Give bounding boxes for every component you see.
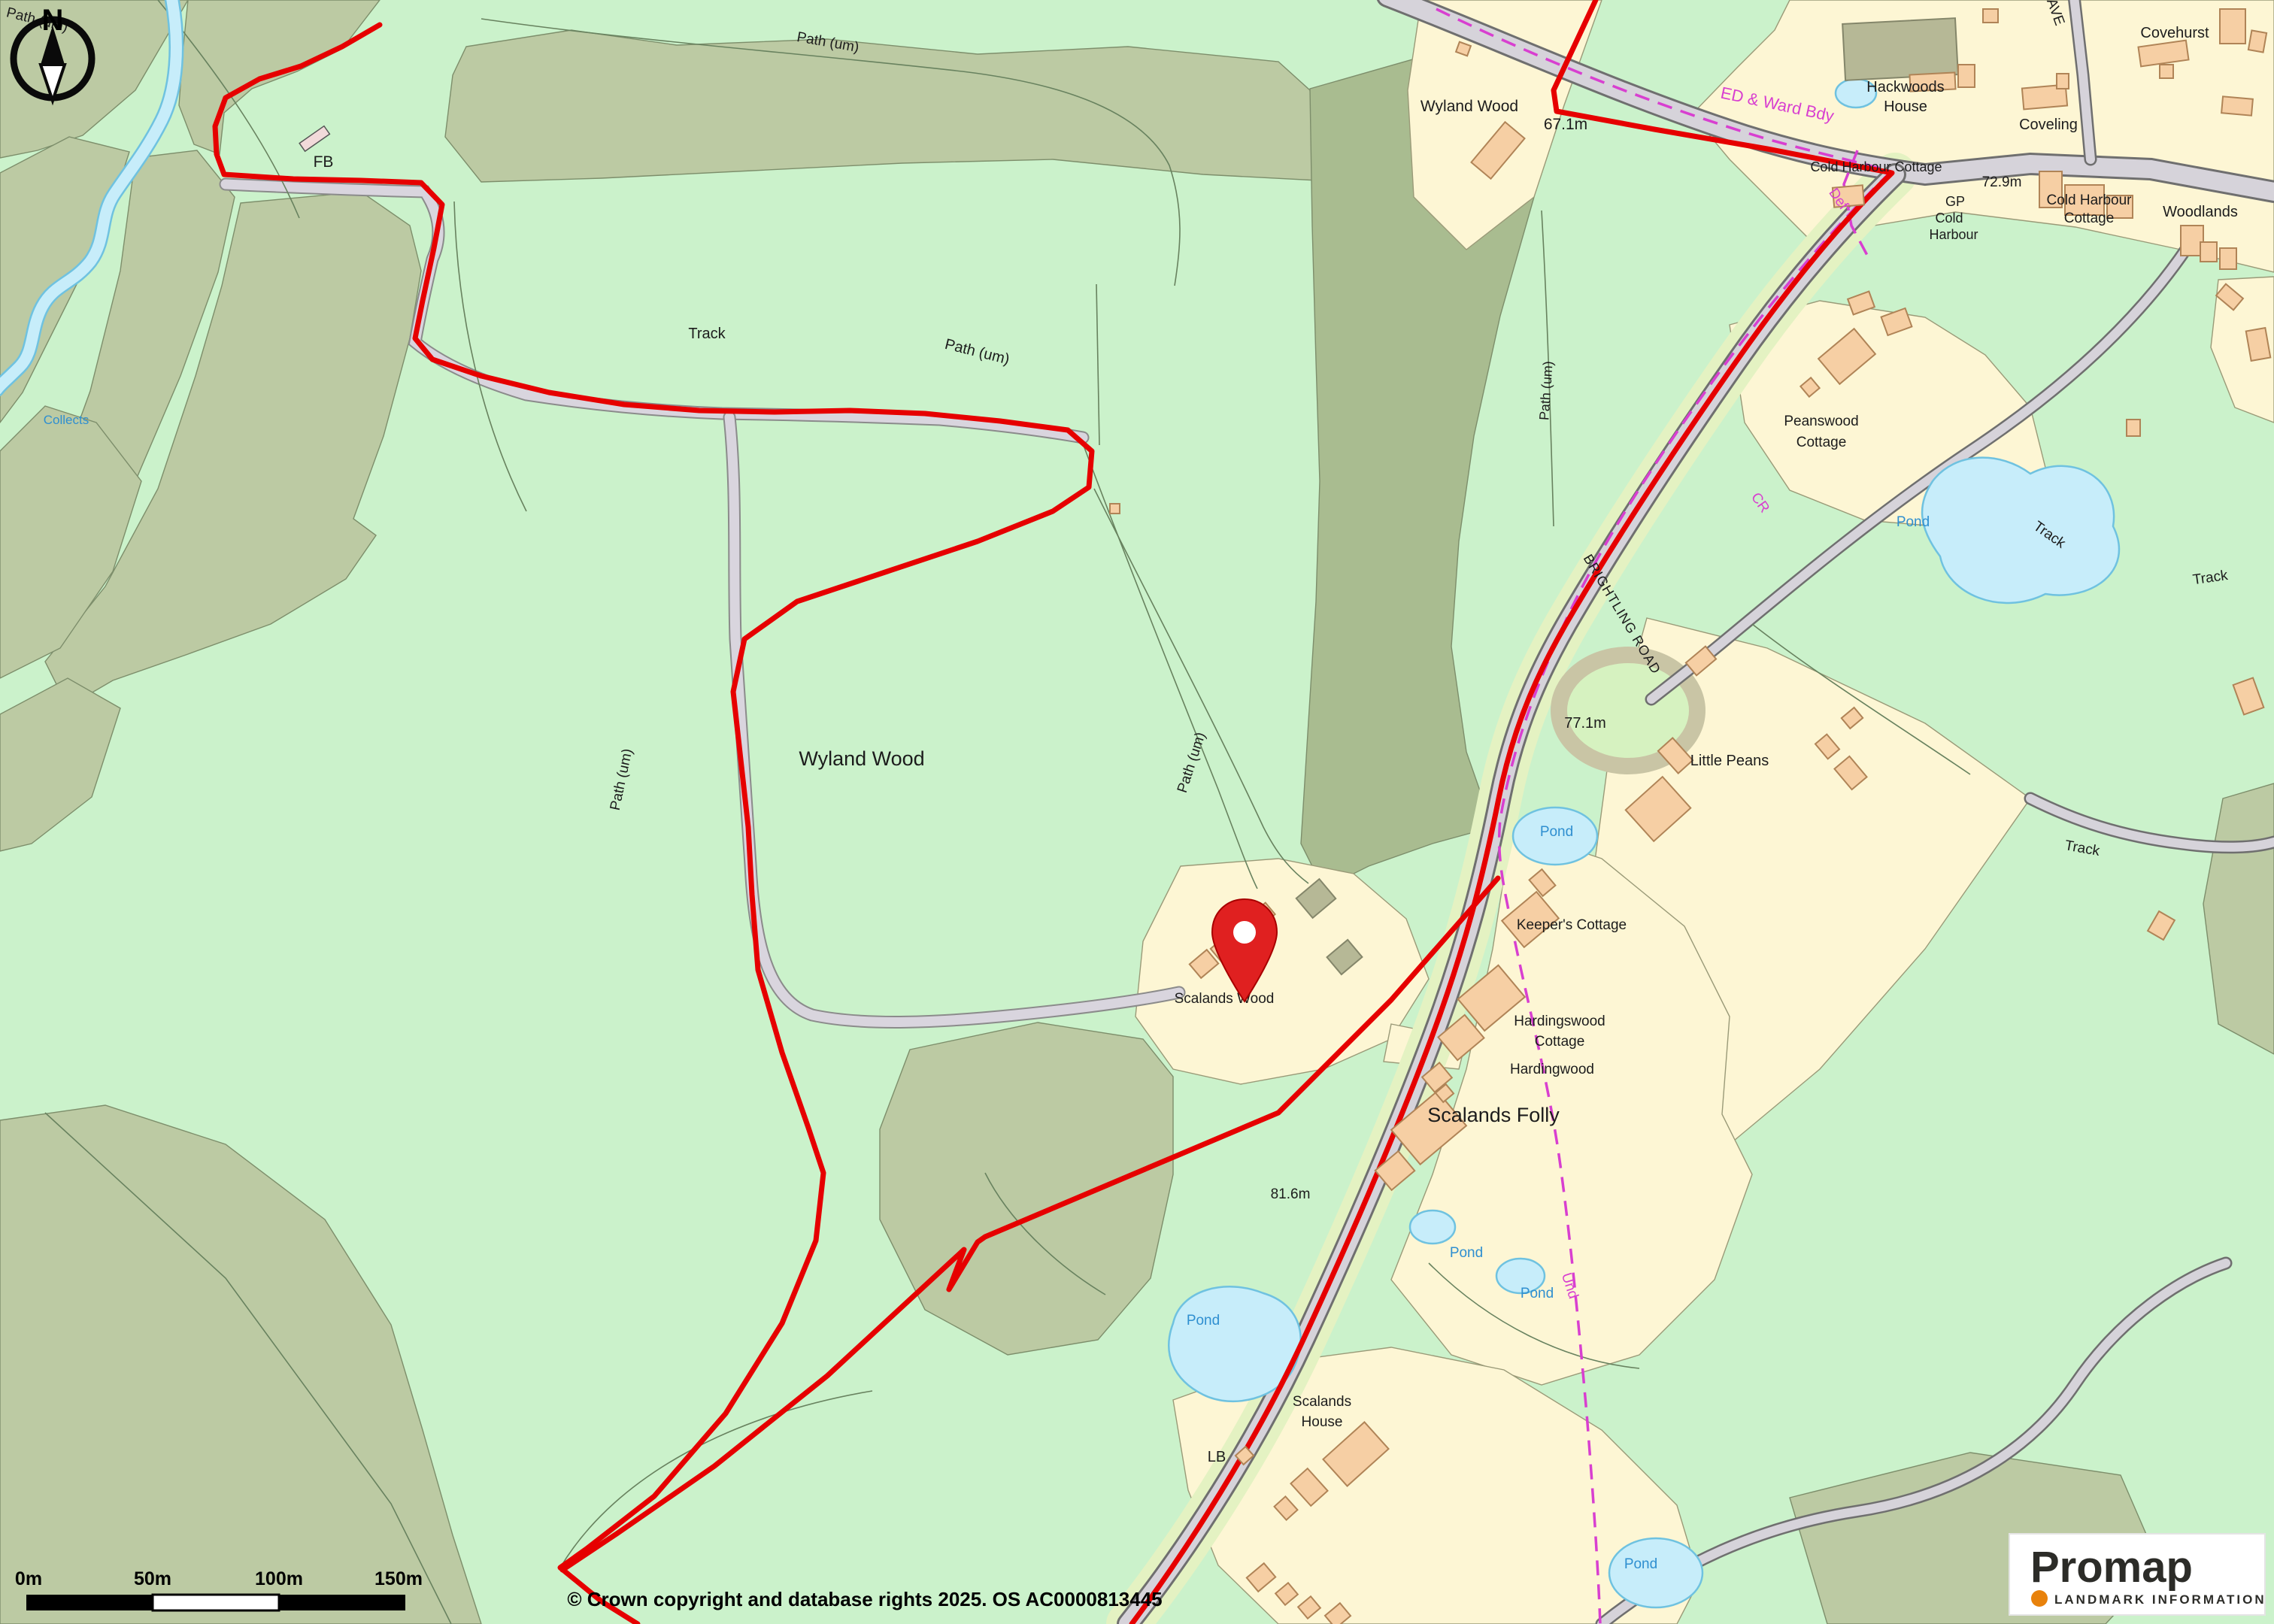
map-label: House (1884, 98, 1927, 115)
map-label: Pond (1187, 1313, 1220, 1329)
map-label: Pond (1540, 824, 1573, 840)
promap-logo-title: Promap (2030, 1543, 2193, 1592)
map-label: Cold Harbour Cottage (1810, 159, 1942, 174)
map-label: Wyland Wood (1420, 98, 1518, 115)
compass-letter: N (42, 4, 64, 37)
map-label: Hackwoods (1866, 79, 1944, 95)
scale-tick-0: 0m (15, 1568, 42, 1589)
map-label: Cold Harbour (2047, 192, 2133, 208)
map-label: Cottage (1535, 1034, 1585, 1050)
map-label: Pond (1897, 514, 1930, 530)
map-label: House (1302, 1414, 1343, 1430)
map-label: Pond (1450, 1245, 1483, 1261)
map-label: Covehurst (2140, 25, 2209, 41)
map-label: Harbour (1929, 227, 1978, 242)
promap-logo: Promap LANDMARK INFORMATION (2009, 1534, 2266, 1615)
map-label: Hardingwood (1510, 1062, 1594, 1077)
map-canvas: Path (um)FBCollectsTrackPath (um)Path (u… (0, 0, 2274, 1624)
promap-logo-dot-icon (2031, 1590, 2048, 1607)
map-label: Cottage (2064, 211, 2115, 226)
map-label: FB (314, 153, 334, 171)
map-label: 81.6m (1271, 1186, 1311, 1202)
promap-logo-subtitle: LANDMARK INFORMATION (2054, 1592, 2266, 1607)
map-label: Peanswood (1784, 414, 1858, 429)
map-stage: Path (um)FBCollectsTrackPath (um)Path (u… (0, 0, 2274, 1624)
map-label: Cold (1935, 211, 1963, 226)
map-label: GP (1945, 194, 1965, 209)
scale-tick-50: 50m (134, 1568, 171, 1589)
map-label: Keeper's Cottage (1517, 917, 1627, 933)
map-label: Cottage (1796, 435, 1847, 450)
map-label: Hardingswood (1514, 1013, 1605, 1029)
map-label: 77.1m (1564, 715, 1606, 732)
copyright-text: © Crown copyright and database rights 20… (567, 1588, 1162, 1610)
map-label: Little Peans (1690, 753, 1769, 769)
map-label: 67.1m (1544, 116, 1587, 133)
map-label: Track (688, 326, 726, 342)
map-label: LB (1208, 1449, 1226, 1465)
map-label: Scalands (1293, 1394, 1351, 1410)
map-label: Scalands Wood (1175, 991, 1275, 1007)
map-label: Coveling (2019, 117, 2078, 133)
scale-tick-100: 100m (255, 1568, 303, 1589)
map-label: Collects (44, 413, 89, 427)
map-label: Scalands Folly (1427, 1104, 1560, 1126)
map-label: Pond (1624, 1556, 1657, 1572)
map-label: Woodlands (2163, 204, 2238, 220)
map-label: 72.9m (1982, 174, 2022, 190)
scale-tick-150: 150m (374, 1568, 423, 1589)
map-label: Pond (1521, 1286, 1554, 1301)
map-label: Wyland Wood (799, 747, 924, 770)
